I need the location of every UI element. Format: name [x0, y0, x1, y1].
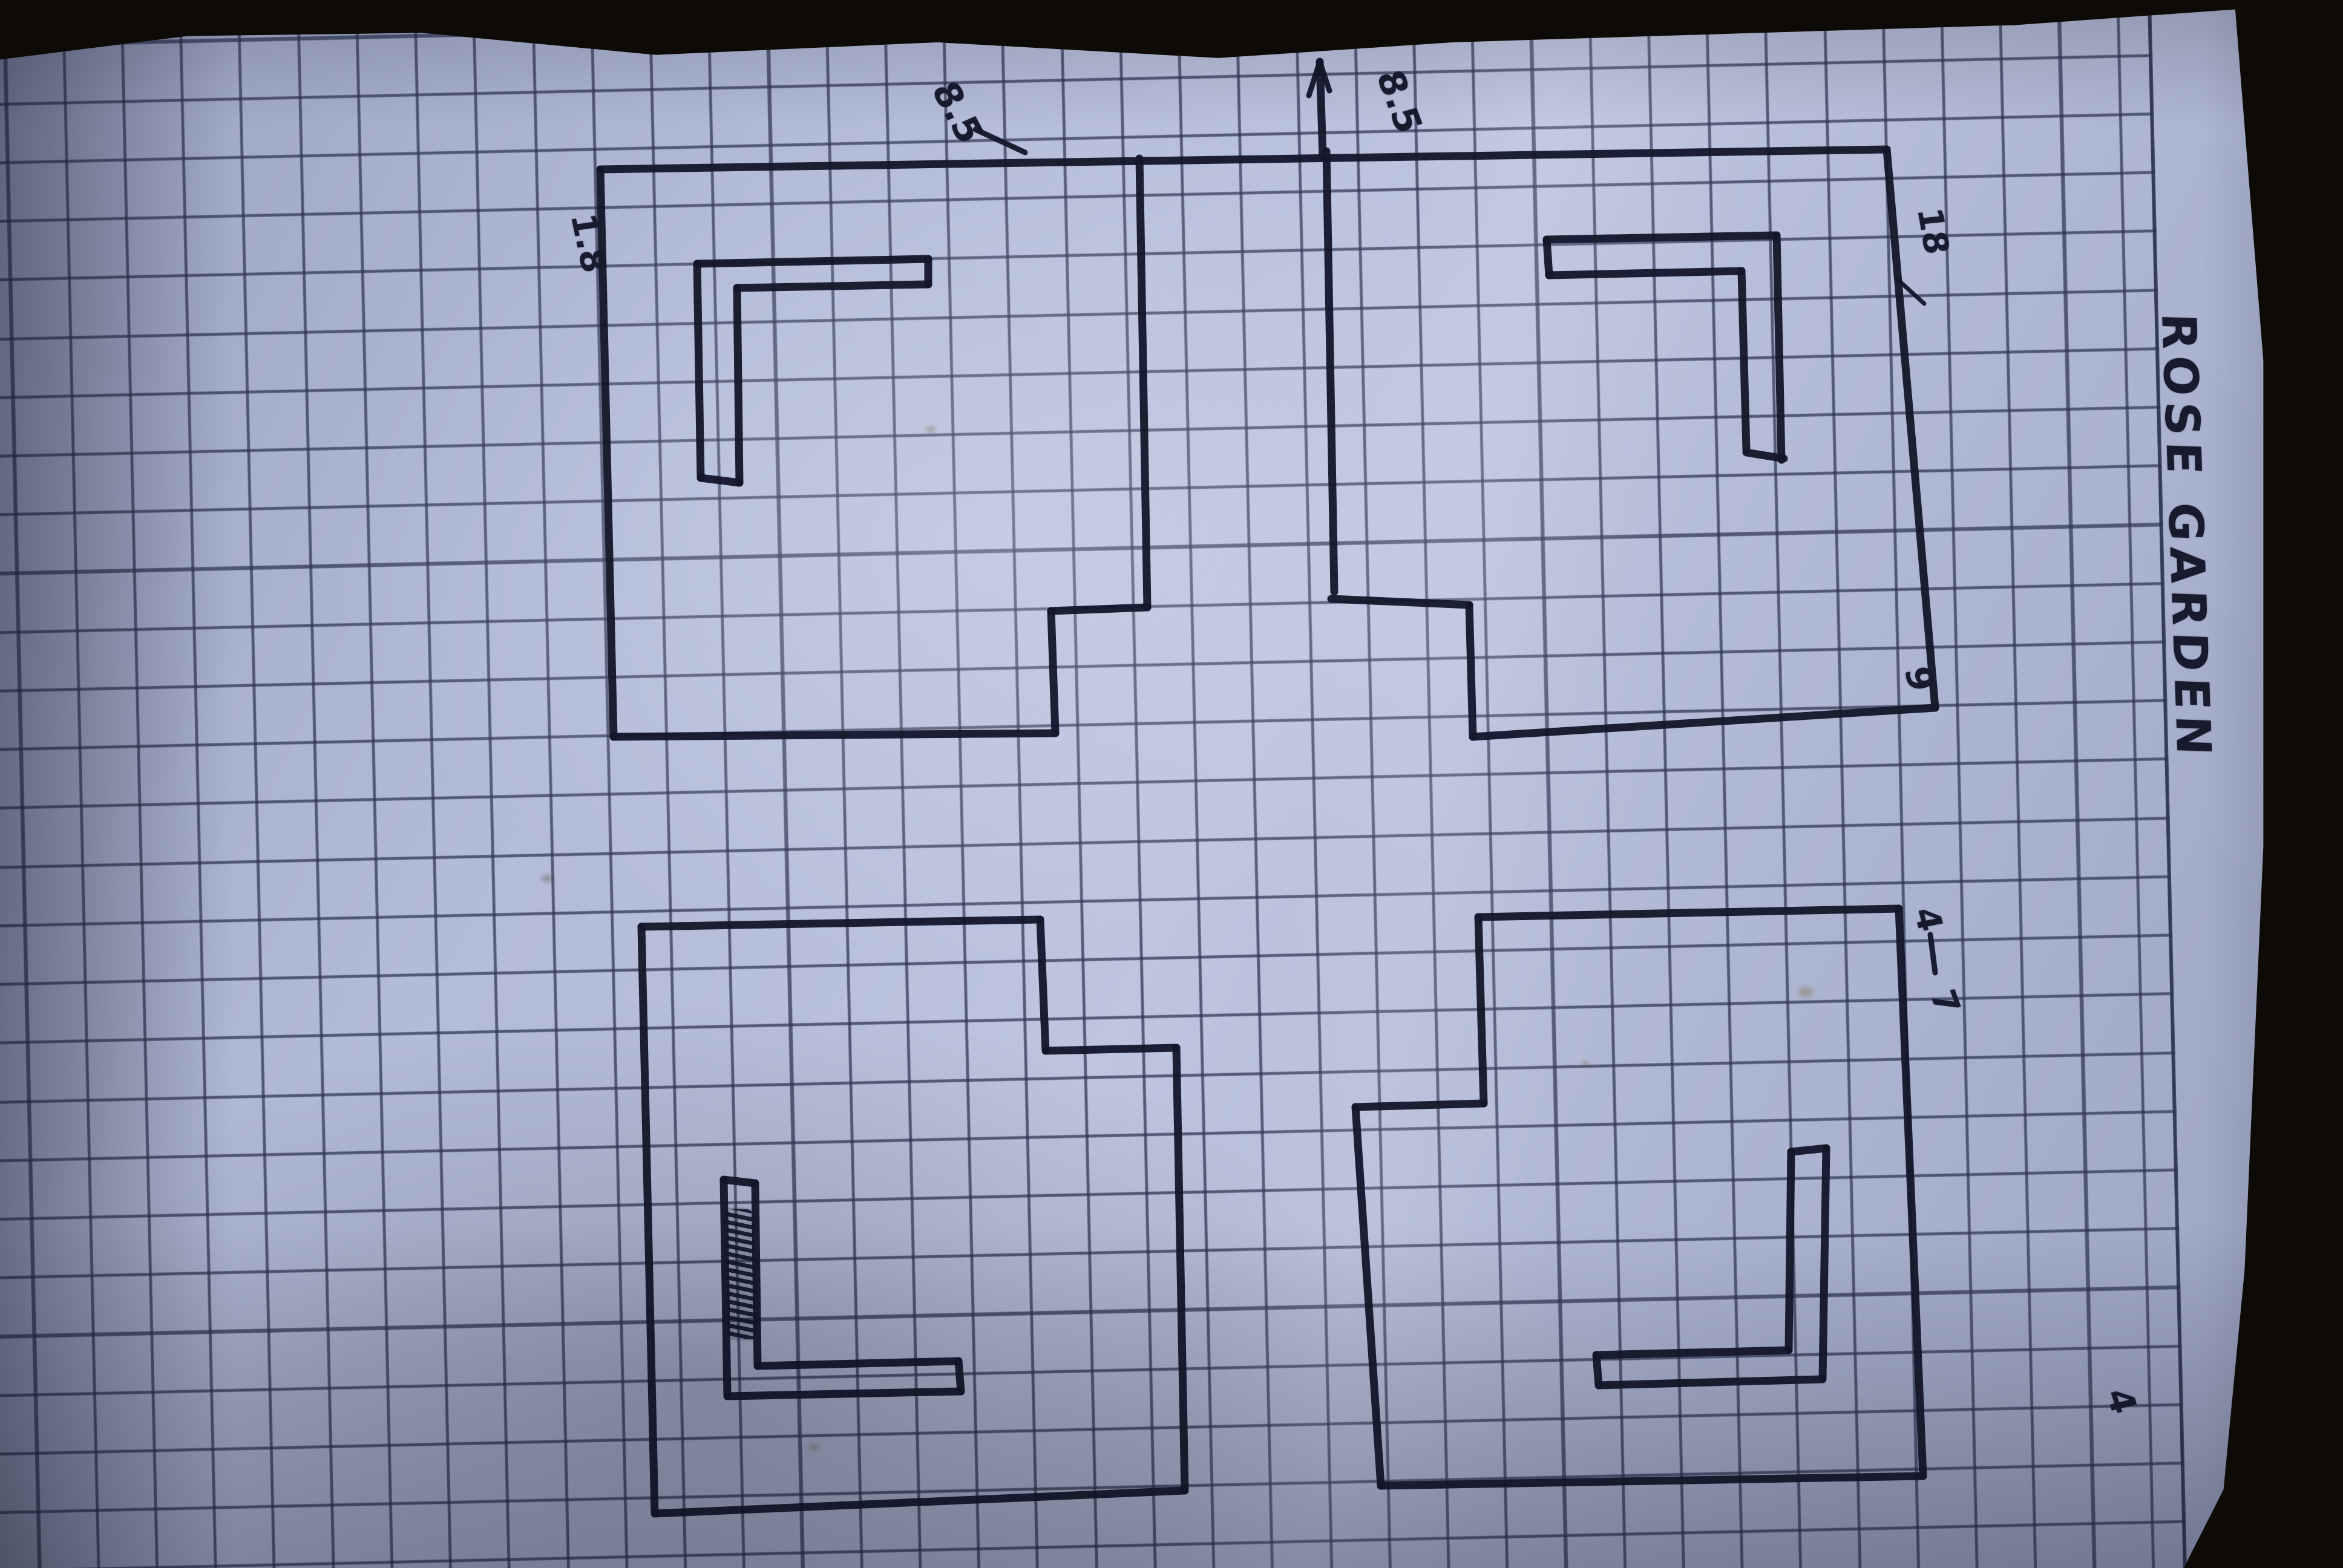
- annotation-layer: 8.58.51.8189474ROSE GARDEN: [0, 0, 2343, 1568]
- measurement-label: 4: [2098, 1385, 2146, 1418]
- measurement-label: 8.5: [923, 76, 992, 149]
- measurement-label: 1.8: [562, 211, 614, 275]
- measurement-label: 4: [1906, 904, 1950, 935]
- plan-title: ROSE GARDEN: [2151, 312, 2221, 762]
- measurement-label: 9: [1896, 663, 1942, 694]
- illegible-scribble: [724, 1209, 758, 1340]
- measurement-label: 18: [1909, 206, 1956, 256]
- graph-paper-sheet: 8.58.51.8189474ROSE GARDEN: [0, 0, 2343, 1568]
- measurement-label: 7: [1922, 985, 1968, 1019]
- measurement-label: 8.5: [1368, 65, 1430, 137]
- photo-of-garden-plan: 8.58.51.8189474ROSE GARDEN: [0, 0, 2343, 1568]
